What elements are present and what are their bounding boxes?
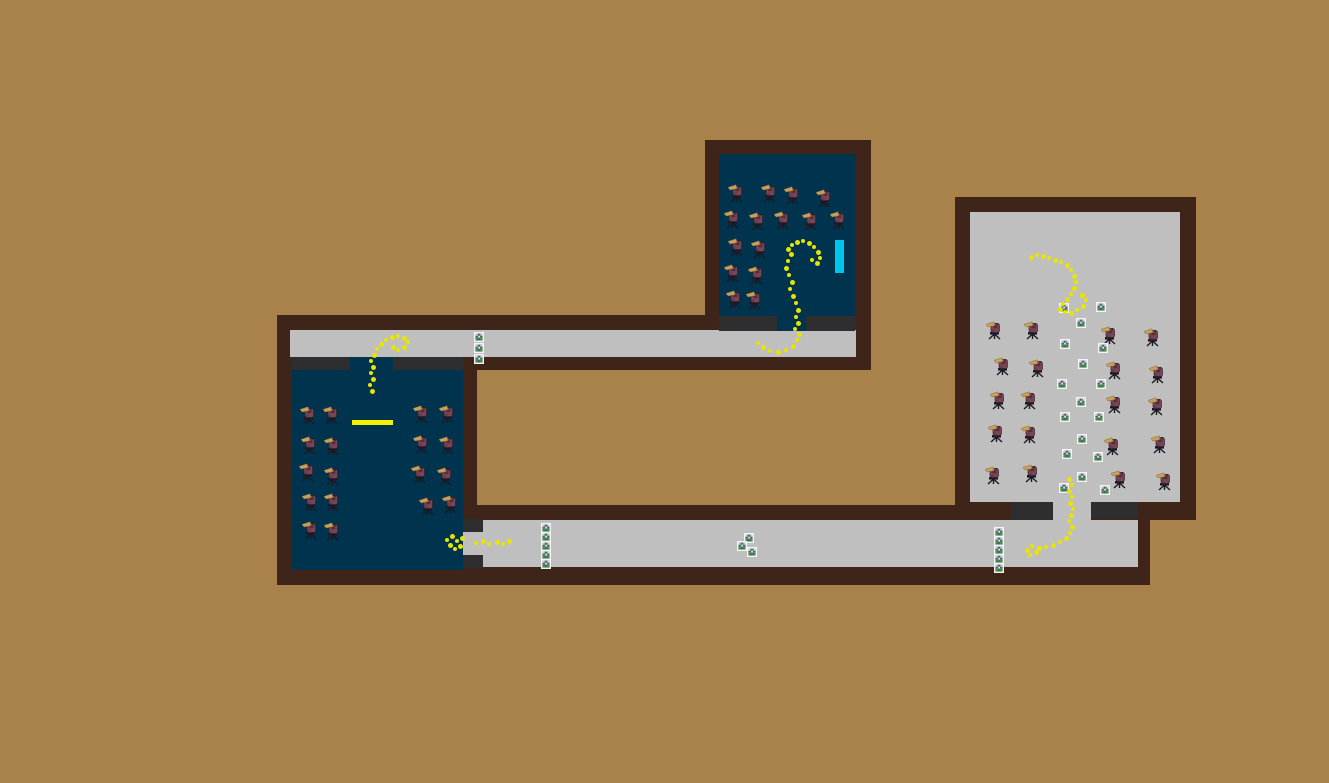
top-room-exit-trail-dot	[791, 344, 796, 349]
item-icon[interactable]	[1078, 359, 1088, 369]
npc-sprite[interactable]	[751, 239, 768, 259]
top-room-exit-trail-dot	[796, 321, 801, 326]
left-room-top-doorway-trail-dot	[372, 353, 377, 358]
top-room-exit-trail-dot	[812, 245, 816, 249]
right-room-bottom-exit-trail-dot	[1067, 519, 1071, 523]
left-room-top-doorway-trail-dot	[371, 377, 376, 382]
item-icon[interactable]	[1057, 379, 1067, 389]
npc-sprite[interactable]	[323, 405, 340, 425]
right-room-top-trail-dot	[1041, 254, 1046, 259]
game-map-canvas[interactable]	[0, 0, 1329, 783]
npc-sprite[interactable]	[413, 404, 430, 424]
right-room-bottom-exit-trail-dot	[1070, 525, 1075, 530]
item-icon[interactable]	[1077, 472, 1087, 482]
npc-sprite[interactable]	[1024, 320, 1041, 340]
top-room-exit-trail-dot	[790, 280, 795, 285]
item-icon[interactable]	[1060, 412, 1070, 422]
npc-sprite[interactable]	[1156, 471, 1173, 491]
npc-sprite[interactable]	[1106, 394, 1123, 414]
left-room-top-doorway-trail-dot	[375, 347, 379, 351]
right-room-bottom-exit-trail-dot	[1069, 513, 1074, 518]
item-icon[interactable]	[994, 563, 1004, 573]
npc-sprite[interactable]	[985, 465, 1002, 485]
npc-sprite[interactable]	[784, 185, 801, 205]
npc-sprite[interactable]	[413, 434, 430, 454]
npc-sprite[interactable]	[1148, 396, 1165, 416]
npc-sprite[interactable]	[299, 462, 316, 482]
left-room-top-doorway-trail-dot	[369, 359, 373, 363]
top-room-exit-trail-dot	[784, 266, 789, 271]
right-room-bottom-exit-trail-dot	[1064, 536, 1069, 541]
left-room-side-threshold-top	[463, 519, 483, 532]
top-room-exit-trail-dot	[797, 332, 802, 337]
left-room-top-doorway-trail-dot	[406, 340, 410, 344]
left-room-top-doorway-trail-dot	[379, 342, 384, 347]
top-room-exit-trail-dot	[776, 350, 781, 355]
right-room-bottom-exit-trail-dot	[1034, 550, 1039, 555]
npc-sprite[interactable]	[761, 183, 778, 203]
left-room-threshold-left	[292, 357, 350, 370]
top-room-exit-trail-dot	[795, 240, 800, 245]
top-room-exit-trail-dot	[794, 315, 798, 319]
item-icon[interactable]	[1094, 412, 1104, 422]
npc-sprite[interactable]	[748, 265, 765, 285]
left-room-side-exit-trail-dot	[495, 540, 500, 545]
top-room-doorway[interactable]	[777, 316, 806, 331]
right-room-top-trail-dot	[1069, 311, 1074, 316]
left-room-side-exit-trail-dot	[481, 539, 486, 544]
right-room-bottom-exit-trail-dot	[1071, 507, 1075, 511]
left-room-side-exit-trail-dot	[460, 536, 465, 541]
right-room-threshold-right	[1091, 502, 1138, 518]
right-room-top-trail-dot	[1047, 256, 1051, 260]
npc-sprite[interactable]	[302, 520, 319, 540]
left-room-side-exit-trail-dot	[474, 541, 478, 545]
top-room-exit-trail-dot	[815, 261, 820, 266]
npc-sprite[interactable]	[1144, 327, 1161, 347]
right-room-bottom-exit-trail-dot	[1067, 477, 1072, 482]
right-room-bottom-exit-trail-dot	[1058, 540, 1062, 544]
left-room-top-doorway-trail-dot	[370, 389, 375, 394]
left-room-top-doorway-trail-dot	[368, 383, 372, 387]
right-room-top-trail-dot	[1072, 286, 1077, 291]
npc-sprite[interactable]	[724, 209, 741, 229]
bottom-corridor-floor[interactable]	[483, 520, 1138, 567]
right-room-top-trail-dot	[1075, 308, 1079, 312]
npc-sprite[interactable]	[324, 436, 341, 456]
yellow-desk[interactable]	[352, 420, 393, 425]
npc-sprite[interactable]	[1151, 434, 1168, 454]
right-room-top-trail-dot	[1029, 255, 1034, 260]
left-room-side-exit-trail-dot	[487, 542, 491, 546]
right-room-top-trail-dot	[1069, 268, 1073, 272]
left-room-top-doorway-trail-dot	[396, 348, 400, 352]
npc-sprite[interactable]	[301, 435, 318, 455]
npc-sprite[interactable]	[1023, 463, 1040, 483]
item-icon[interactable]	[747, 547, 757, 557]
npc-sprite[interactable]	[437, 466, 454, 486]
npc-sprite[interactable]	[300, 405, 317, 425]
left-room-top-doorway-trail-dot	[384, 338, 388, 342]
npc-sprite[interactable]	[728, 237, 745, 257]
top-room-exit-trail-dot	[756, 341, 760, 345]
right-room-top-trail-dot	[1074, 280, 1078, 284]
npc-sprite[interactable]	[324, 466, 341, 486]
npc-sprite[interactable]	[726, 289, 743, 309]
left-room-side-threshold-bottom	[463, 555, 483, 568]
top-room-exit-trail-dot	[790, 243, 794, 247]
npc-sprite[interactable]	[1104, 436, 1121, 456]
npc-sprite[interactable]	[986, 320, 1003, 340]
item-icon[interactable]	[1076, 318, 1086, 328]
right-room-bottom-exit-trail-dot	[1070, 495, 1074, 499]
top-room-exit-trail-dot	[796, 308, 801, 313]
top-room-exit-trail-dot	[786, 259, 790, 263]
right-room-top-trail-dot	[1053, 258, 1058, 263]
npc-sprite[interactable]	[728, 183, 745, 203]
right-room-top-trail-dot	[1059, 260, 1063, 264]
npc-sprite[interactable]	[990, 390, 1007, 410]
npc-sprite[interactable]	[419, 496, 436, 516]
item-icon[interactable]	[474, 354, 484, 364]
left-room-threshold-right	[393, 357, 463, 370]
item-icon[interactable]	[1100, 485, 1110, 495]
top-room-exit-trail-dot	[787, 273, 791, 277]
top-room-exit-trail-dot	[761, 345, 766, 350]
right-room-bottom-exit-trail-dot	[1067, 489, 1072, 494]
right-room-top-trail-dot	[1061, 302, 1065, 306]
left-room-side-exit-trail-dot	[450, 534, 455, 539]
npc-sprite[interactable]	[324, 521, 341, 541]
item-icon[interactable]	[474, 332, 484, 342]
npc-sprite[interactable]	[1111, 469, 1128, 489]
right-room-top-trail-dot	[1069, 292, 1073, 296]
top-room-exit-trail-dot	[810, 258, 814, 262]
right-room-bottom-exit-trail-dot	[1068, 531, 1072, 535]
left-room-side-exit-trail-dot	[507, 539, 512, 544]
top-room-exit-trail-dot	[794, 301, 798, 305]
item-icon[interactable]	[474, 343, 484, 353]
right-room-bottom-exit-trail-dot	[1068, 501, 1073, 506]
left-room-top-doorway-trail-dot	[371, 365, 376, 370]
right-room-bottom-exit-trail-dot	[1028, 553, 1032, 557]
left-room-top-doorway-trail-dot	[391, 345, 396, 350]
npc-sprite[interactable]	[749, 211, 766, 231]
item-icon[interactable]	[1096, 302, 1106, 312]
right-room-bottom-exit-trail-dot	[1070, 483, 1074, 487]
right-room-top-trail-dot	[1063, 310, 1067, 314]
npc-sprite[interactable]	[1149, 364, 1166, 384]
left-room-side-exit-trail-dot	[501, 542, 505, 546]
left-room-top-doorway-trail-dot	[402, 345, 407, 350]
item-icon[interactable]	[541, 559, 551, 569]
npc-sprite[interactable]	[1106, 360, 1123, 380]
right-room-top-trail-dot	[1065, 297, 1070, 302]
top-room-threshold-left	[719, 316, 777, 331]
top-room-exit-trail-dot	[768, 349, 772, 353]
item-icon[interactable]	[1093, 452, 1103, 462]
cyan-board[interactable]	[835, 240, 844, 273]
left-room-top-doorway-trail-dot	[396, 334, 400, 338]
npc-sprite[interactable]	[802, 211, 819, 231]
item-icon[interactable]	[1076, 397, 1086, 407]
left-room-side-exit-trail-dot	[453, 547, 457, 551]
left-room-side-exit-trail-dot	[445, 538, 449, 542]
right-room-top-trail-dot	[1080, 293, 1085, 298]
item-icon[interactable]	[1060, 339, 1070, 349]
left-room-side-exit-trail-dot	[455, 539, 459, 543]
npc-sprite[interactable]	[1021, 424, 1038, 444]
npc-sprite[interactable]	[994, 356, 1011, 376]
right-room-bottom-exit-trail-dot	[1030, 544, 1034, 548]
npc-sprite[interactable]	[816, 188, 833, 208]
item-icon[interactable]	[1098, 343, 1108, 353]
npc-sprite[interactable]	[1021, 390, 1038, 410]
top-room-threshold-right	[806, 316, 855, 331]
top-room-exit-trail-dot	[816, 250, 821, 255]
item-icon[interactable]	[1096, 379, 1106, 389]
right-room-bottom-exit-trail-dot	[1044, 545, 1048, 549]
right-room-top-trail-dot	[1081, 304, 1086, 309]
top-room-exit-trail-dot	[793, 327, 797, 331]
top-room-exit-trail-dot	[801, 239, 805, 243]
left-room-top-doorway-trail-dot	[369, 371, 373, 375]
left-room-side-exit-trail-dot	[458, 544, 463, 549]
top-room-exit-trail-dot	[795, 338, 799, 342]
npc-sprite[interactable]	[830, 210, 847, 230]
npc-sprite[interactable]	[724, 263, 741, 283]
top-room-exit-trail-dot	[791, 294, 796, 299]
right-room-top-trail-dot	[1084, 298, 1088, 302]
top-room-exit-trail-dot	[818, 256, 822, 260]
right-room-bottom-exit-trail-dot	[1051, 543, 1056, 548]
item-icon[interactable]	[1077, 434, 1087, 444]
top-room-exit-trail-dot	[784, 348, 788, 352]
npc-sprite[interactable]	[439, 435, 456, 455]
npc-sprite[interactable]	[746, 290, 763, 310]
npc-sprite[interactable]	[1029, 358, 1046, 378]
npc-sprite[interactable]	[442, 494, 459, 514]
npc-sprite[interactable]	[1101, 325, 1118, 345]
top-room-exit-trail-dot	[788, 287, 792, 291]
right-room-top-trail-dot	[1072, 274, 1077, 279]
npc-sprite[interactable]	[324, 492, 341, 512]
item-icon[interactable]	[737, 541, 747, 551]
npc-sprite[interactable]	[439, 404, 456, 424]
item-icon[interactable]	[1062, 449, 1072, 459]
right-room-top-trail-dot	[1035, 253, 1039, 257]
npc-sprite[interactable]	[411, 464, 428, 484]
left-room-side-doorway[interactable]	[463, 532, 483, 555]
npc-sprite[interactable]	[302, 492, 319, 512]
npc-sprite[interactable]	[988, 423, 1005, 443]
npc-sprite[interactable]	[774, 210, 791, 230]
left-room-top-doorway-trail-dot	[390, 335, 395, 340]
right-room-threshold-left	[1011, 502, 1053, 520]
top-room-exit-trail-dot	[789, 252, 794, 257]
